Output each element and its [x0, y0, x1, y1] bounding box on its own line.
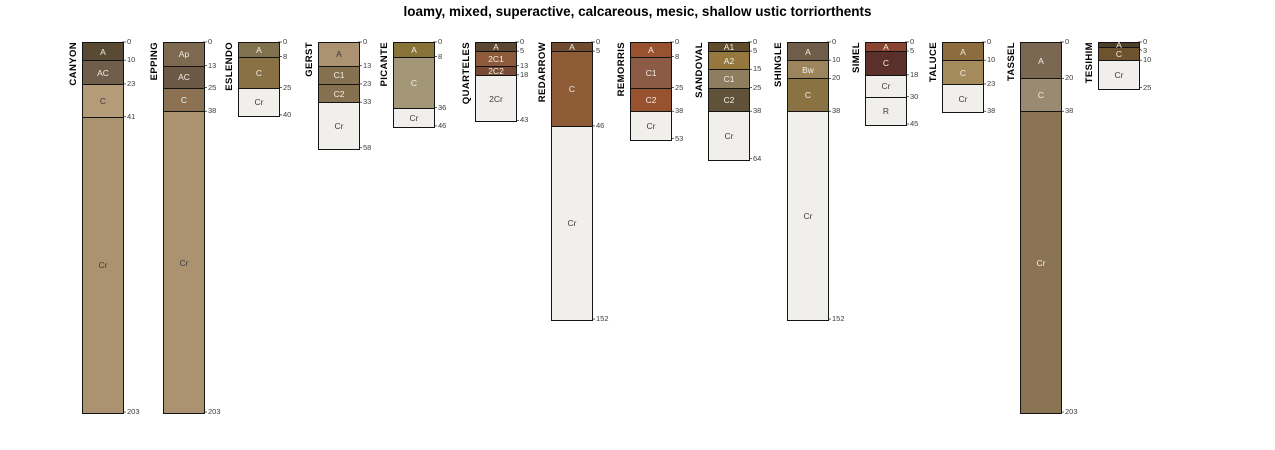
horizon-block: Cr	[943, 85, 983, 112]
soil-column-tesihim: ACCr	[1098, 42, 1140, 90]
horizon-label: C	[960, 69, 966, 77]
depth-tick-label: 25	[675, 84, 683, 92]
horizon-label: A	[256, 46, 262, 54]
horizon-block: A1	[709, 43, 749, 52]
depth-tick-label: 33	[363, 98, 371, 106]
horizon-block: Cr	[83, 118, 123, 413]
horizon-block: A	[866, 43, 906, 52]
horizon-label: A	[960, 48, 966, 56]
depth-tick-label: 20	[832, 74, 840, 82]
depth-tick-label: 23	[127, 80, 135, 88]
depth-tick-label: 53	[675, 135, 683, 143]
horizon-label: A1	[724, 43, 734, 51]
horizon-block: C1	[319, 67, 359, 85]
depth-tick-label: 18	[910, 71, 918, 79]
depth-tick-label: 13	[520, 62, 528, 70]
horizon-block: Cr	[164, 112, 204, 413]
horizon-block: A	[239, 43, 279, 58]
horizon-label: Cr	[725, 132, 734, 140]
horizon-label: C1	[334, 71, 345, 79]
soil-profile-figure: loamy, mixed, superactive, calcareous, m…	[0, 0, 1275, 450]
horizon-block: C2	[319, 85, 359, 103]
soil-column-taluce: ACCr	[942, 42, 984, 113]
depth-tick-label: 8	[438, 53, 442, 61]
depth-tick-label: 18	[520, 71, 528, 79]
depth-tick-label: 5	[596, 47, 600, 55]
depth-tick-label: 8	[283, 53, 287, 61]
horizon-block: C	[164, 89, 204, 113]
soil-column-tassel: ACCr	[1020, 42, 1062, 414]
horizon-label: Cr	[180, 259, 189, 267]
depth-tick-label: 25	[208, 84, 216, 92]
depth-tick-label: 41	[127, 113, 135, 121]
profile-name-label-shingle: SHINGLE	[773, 42, 784, 87]
depth-tick-label: 15	[753, 65, 761, 73]
depth-tick-label: 152	[832, 315, 845, 323]
depth-tick-label: 38	[753, 107, 761, 115]
profile-name-label-tesihim: TESIHIM	[1084, 42, 1095, 83]
depth-tick-label: 25	[753, 84, 761, 92]
horizon-block: C	[394, 58, 434, 109]
horizon-block: C	[1021, 79, 1061, 112]
horizon-block: Cr	[394, 109, 434, 127]
horizon-block: 2Cr	[476, 76, 516, 122]
horizon-label: C	[805, 91, 811, 99]
horizon-label: Cr	[882, 82, 891, 90]
depth-tick-label: 38	[675, 107, 683, 115]
horizon-block: Cr	[631, 112, 671, 139]
depth-tick-label: 10	[832, 56, 840, 64]
horizon-block: C2	[709, 89, 749, 113]
horizon-block: A2	[709, 52, 749, 70]
figure-title: loamy, mixed, superactive, calcareous, m…	[0, 4, 1275, 19]
horizon-block: A	[631, 43, 671, 58]
horizon-block: A	[476, 43, 516, 52]
depth-tick-label: 10	[987, 56, 995, 64]
horizon-block: Cr	[1021, 112, 1061, 413]
profile-name-label-taluce: TALUCE	[928, 42, 939, 82]
horizon-block: C	[788, 79, 828, 112]
profile-name-label-canyon: CANYON	[68, 42, 79, 86]
horizon-label: C2	[724, 96, 735, 104]
depth-tick-label: 0	[520, 38, 524, 46]
depth-tick-label: 30	[910, 93, 918, 101]
horizon-block: C1	[709, 70, 749, 88]
horizon-label: Cr	[959, 95, 968, 103]
horizon-label: A2	[724, 57, 734, 65]
horizon-label: C2	[646, 96, 657, 104]
depth-tick-label: 23	[363, 80, 371, 88]
horizon-label: Cr	[568, 219, 577, 227]
horizon-label: C1	[724, 75, 735, 83]
depth-tick-label: 5	[753, 47, 757, 55]
depth-tick-label: 3	[1143, 47, 1147, 55]
depth-tick-label: 36	[438, 104, 446, 112]
horizon-block: C	[83, 85, 123, 118]
depth-tick-label: 5	[520, 47, 524, 55]
depth-tick-label: 0	[363, 38, 367, 46]
profile-name-label-remorris: REMORRIS	[616, 42, 627, 96]
profile-name-label-simel: SIMEL	[851, 42, 862, 73]
depth-tick-label: 64	[753, 155, 761, 163]
horizon-block: C1	[631, 58, 671, 89]
soil-column-redarrow: ACCr	[551, 42, 593, 321]
horizon-block: A	[319, 43, 359, 67]
horizon-block: C	[866, 52, 906, 76]
depth-tick-label: 13	[363, 62, 371, 70]
horizon-block: A	[1021, 43, 1061, 79]
horizon-block: AC	[83, 61, 123, 85]
depth-tick-label: 0	[910, 38, 914, 46]
horizon-label: Ap	[179, 50, 189, 58]
profile-name-label-quarteles: QUARTELES	[461, 42, 472, 104]
horizon-label: A	[336, 50, 342, 58]
depth-tick-label: 0	[127, 38, 131, 46]
horizon-label: Cr	[1115, 71, 1124, 79]
depth-tick-label: 38	[832, 107, 840, 115]
profile-name-label-eslendo: ESLENDO	[224, 42, 235, 91]
horizon-label: 2C2	[488, 67, 504, 75]
depth-tick-label: 38	[987, 107, 995, 115]
horizon-block: C	[1099, 48, 1139, 61]
depth-tick-label: 46	[438, 122, 446, 130]
horizon-block: AC	[164, 67, 204, 89]
horizon-label: C	[1116, 50, 1122, 58]
depth-tick-label: 203	[208, 408, 221, 416]
horizon-block: A	[943, 43, 983, 61]
soil-column-shingle: ABwCCr	[787, 42, 829, 321]
profile-name-label-gerst: GERST	[304, 42, 315, 77]
horizon-label: A	[493, 43, 499, 51]
horizon-block: Cr	[709, 112, 749, 159]
depth-tick-label: 0	[675, 38, 679, 46]
depth-tick-label: 20	[1065, 74, 1073, 82]
soil-column-sandoval: A1A2C1C2Cr	[708, 42, 750, 161]
soil-column-eslendo: ACCr	[238, 42, 280, 117]
horizon-label: Cr	[410, 114, 419, 122]
horizon-label: C	[569, 85, 575, 93]
profile-name-label-picante: PICANTE	[379, 42, 390, 87]
horizon-label: Bw	[802, 66, 814, 74]
soil-column-remorris: AC1C2Cr	[630, 42, 672, 141]
horizon-block: A	[788, 43, 828, 61]
soil-column-epping: ApACCCr	[163, 42, 205, 414]
horizon-label: Cr	[99, 261, 108, 269]
depth-tick-label: 45	[910, 120, 918, 128]
horizon-block: Bw	[788, 61, 828, 79]
horizon-label: Cr	[1037, 259, 1046, 267]
profile-name-label-sandoval: SANDOVAL	[694, 42, 705, 98]
depth-tick-label: 8	[675, 53, 679, 61]
depth-tick-label: 25	[283, 84, 291, 92]
soil-column-quarteles: A2C12C22Cr	[475, 42, 517, 122]
horizon-label: A	[648, 46, 654, 54]
profile-name-label-tassel: TASSEL	[1006, 42, 1017, 81]
depth-tick-label: 203	[1065, 408, 1078, 416]
depth-tick-label: 0	[753, 38, 757, 46]
horizon-label: C2	[334, 90, 345, 98]
depth-tick-label: 38	[208, 107, 216, 115]
horizon-label: Cr	[335, 122, 344, 130]
depth-tick-label: 0	[1065, 38, 1069, 46]
horizon-label: 2C1	[488, 55, 504, 63]
horizon-block: C2	[631, 89, 671, 113]
horizon-block: Cr	[866, 76, 906, 98]
depth-tick-label: 58	[363, 144, 371, 152]
depth-tick-label: 13	[208, 62, 216, 70]
depth-tick-label: 25	[1143, 84, 1151, 92]
horizon-label: A	[100, 48, 106, 56]
depth-tick-label: 10	[127, 56, 135, 64]
horizon-block: 2C1	[476, 52, 516, 67]
horizon-label: A	[1038, 57, 1044, 65]
depth-tick-label: 152	[596, 315, 609, 323]
depth-tick-label: 40	[283, 111, 291, 119]
depth-tick-label: 38	[1065, 107, 1073, 115]
profile-name-label-epping: EPPING	[149, 42, 160, 80]
soil-column-simel: ACCrR	[865, 42, 907, 126]
depth-tick-label: 0	[283, 38, 287, 46]
depth-tick-label: 43	[520, 116, 528, 124]
horizon-label: C	[883, 59, 889, 67]
horizon-block: A	[83, 43, 123, 61]
depth-tick-label: 0	[1143, 38, 1147, 46]
horizon-label: A	[411, 46, 417, 54]
horizon-block: Cr	[788, 112, 828, 320]
horizon-label: C	[100, 97, 106, 105]
depth-tick-label: 5	[910, 47, 914, 55]
horizon-block: Cr	[1099, 61, 1139, 88]
horizon-label: A	[805, 48, 811, 56]
depth-tick-label: 0	[596, 38, 600, 46]
horizon-label: C	[181, 96, 187, 104]
horizon-label: R	[883, 107, 889, 115]
depth-tick-label: 203	[127, 408, 140, 416]
depth-tick-label: 46	[596, 122, 604, 130]
depth-tick-label: 0	[832, 38, 836, 46]
horizon-label: 2Cr	[489, 95, 503, 103]
horizon-block: A	[394, 43, 434, 58]
depth-tick-label: 0	[208, 38, 212, 46]
horizon-label: Cr	[804, 212, 813, 220]
horizon-label: C	[411, 79, 417, 87]
horizon-block: 2C2	[476, 67, 516, 76]
horizon-label: A	[569, 43, 575, 51]
horizon-label: AC	[97, 69, 109, 77]
horizon-label: A	[883, 43, 889, 51]
horizon-label: C	[256, 69, 262, 77]
horizon-block: Cr	[239, 89, 279, 116]
horizon-label: Cr	[647, 122, 656, 130]
horizon-block: A	[552, 43, 592, 52]
horizon-label: A	[1116, 41, 1122, 49]
horizon-block: R	[866, 98, 906, 125]
horizon-label: C1	[646, 69, 657, 77]
soil-column-canyon: AACCCr	[82, 42, 124, 414]
soil-column-gerst: AC1C2Cr	[318, 42, 360, 150]
depth-tick-label: 10	[1143, 56, 1151, 64]
depth-tick-label: 0	[987, 38, 991, 46]
soil-column-picante: ACCr	[393, 42, 435, 128]
horizon-label: Cr	[255, 98, 264, 106]
horizon-block: Ap	[164, 43, 204, 67]
depth-tick-label: 23	[987, 80, 995, 88]
horizon-block: C	[552, 52, 592, 127]
horizon-block: C	[943, 61, 983, 85]
horizon-block: Cr	[552, 127, 592, 320]
horizon-block: Cr	[319, 103, 359, 149]
profile-name-label-redarrow: REDARROW	[537, 42, 548, 102]
horizon-label: AC	[178, 73, 190, 81]
horizon-block: C	[239, 58, 279, 89]
horizon-label: C	[1038, 91, 1044, 99]
depth-tick-label: 0	[438, 38, 442, 46]
